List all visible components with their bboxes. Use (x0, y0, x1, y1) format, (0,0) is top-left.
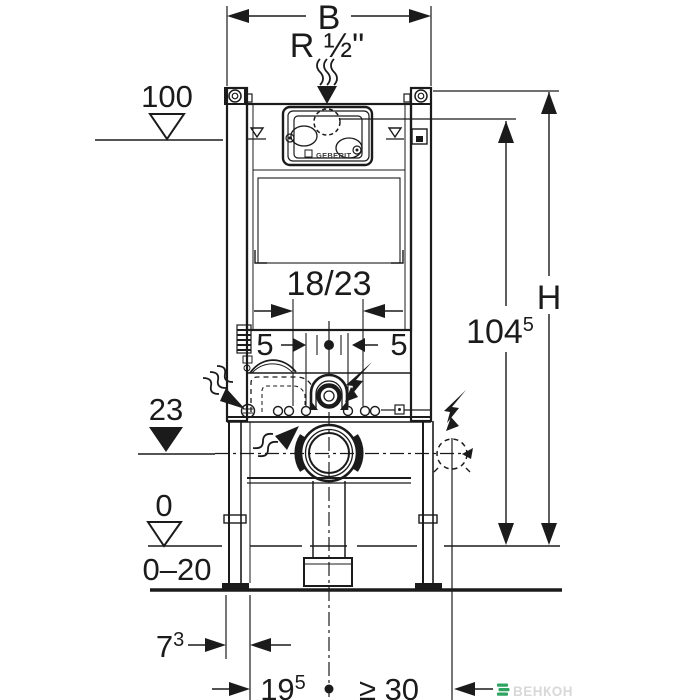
dim-min-30-label: ≥ 30 (359, 672, 419, 700)
watermark-label: ВЕНКОН (513, 684, 573, 699)
outlet-bend-fitting (311, 375, 347, 410)
dim-5-right-label: 5 (390, 327, 407, 362)
dim-h-label: H (537, 279, 562, 317)
floor-range-label: 0–20 (143, 552, 212, 587)
level-0-label: 0 (155, 488, 172, 523)
technical-drawing: GEBERIT (0, 0, 700, 700)
frame-foot-left (222, 583, 249, 589)
installation-diagram: GEBERIT (0, 0, 700, 700)
axis-point (324, 340, 334, 350)
dim-5-left-label: 5 (256, 327, 273, 362)
level-100-label: 100 (141, 79, 193, 114)
frame-foot-right (415, 583, 442, 589)
dimension-point (325, 685, 334, 694)
flush-plate: GEBERIT (283, 107, 372, 165)
dim-18-23-label: 18/23 (286, 265, 371, 303)
watermark-icon (497, 684, 510, 696)
brand-label: GEBERIT (316, 151, 352, 160)
level-23-label: 23 (149, 392, 183, 427)
